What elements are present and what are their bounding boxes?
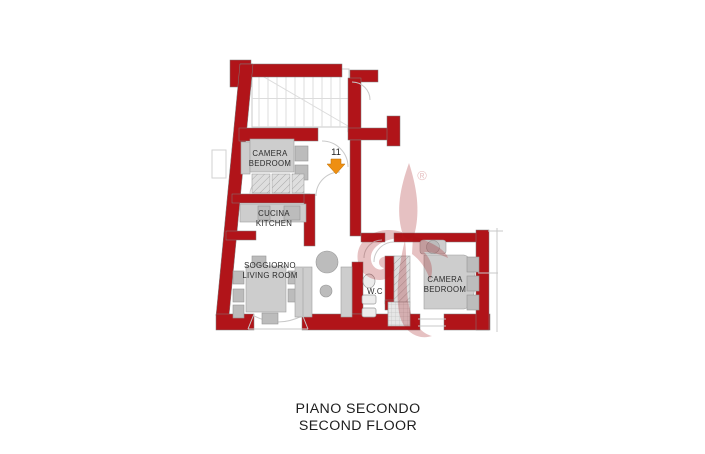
floor-plan-canvas: ® 11 CAMERA BEDROOM CUCINA KITCHEN SOGGI… <box>0 0 705 454</box>
wall-segment <box>348 128 390 140</box>
watermark-petal <box>399 163 417 239</box>
pillow-icon <box>467 257 479 272</box>
sofa-icon <box>341 267 352 317</box>
room-label-living-line1: SOGGIORNO <box>244 261 296 270</box>
nightstand-icon <box>295 146 308 161</box>
toilet-icon <box>362 295 376 304</box>
unit-number-label: 11 <box>331 147 341 158</box>
window-recess <box>212 150 226 178</box>
wardrobe-icon <box>292 174 304 193</box>
chair-icon <box>233 289 244 302</box>
floor-plan-page: ® 11 CAMERA BEDROOM CUCINA KITCHEN SOGGI… <box>0 0 705 454</box>
wardrobe-icon <box>252 174 270 193</box>
room-label-living-line2: LIVING ROOM <box>242 271 297 280</box>
wall-segment <box>232 194 310 203</box>
chair-icon <box>233 305 244 318</box>
plan-title-italian: PIANO SECONDO <box>295 401 420 417</box>
room-label-bedroom-right-line1: CAMERA <box>427 275 463 284</box>
wall-segment-corridor <box>350 140 361 236</box>
room-label-bedroom-right-line2: BEDROOM <box>424 285 466 294</box>
wall-segment <box>387 116 400 146</box>
pillow-icon <box>467 276 479 291</box>
room-label-wc: W.C <box>367 287 383 296</box>
staircase <box>252 69 349 127</box>
pillow-icon <box>467 295 479 310</box>
round-table-icon <box>316 251 338 273</box>
room-label-bedroom-left-line2: BEDROOM <box>249 159 291 168</box>
entrance-arrow-icon <box>327 159 345 174</box>
registered-trademark-icon: ® <box>417 168 427 183</box>
plan-title-english: SECOND FLOOR <box>299 418 417 434</box>
chair-icon <box>262 313 278 324</box>
wall-segment <box>348 78 361 132</box>
door-arc <box>316 172 340 196</box>
room-label-bedroom-left-line1: CAMERA <box>252 149 288 158</box>
wall-segment <box>226 231 256 240</box>
room-label-kitchen-line2: KITCHEN <box>256 219 292 228</box>
wardrobe-icon <box>272 174 290 193</box>
closet-icon <box>241 142 250 174</box>
stool-icon <box>320 285 332 297</box>
wall-segment <box>240 64 342 77</box>
stair-treads <box>252 70 349 127</box>
bidet-icon <box>362 308 376 317</box>
room-label-kitchen-line1: CUCINA <box>258 209 290 218</box>
